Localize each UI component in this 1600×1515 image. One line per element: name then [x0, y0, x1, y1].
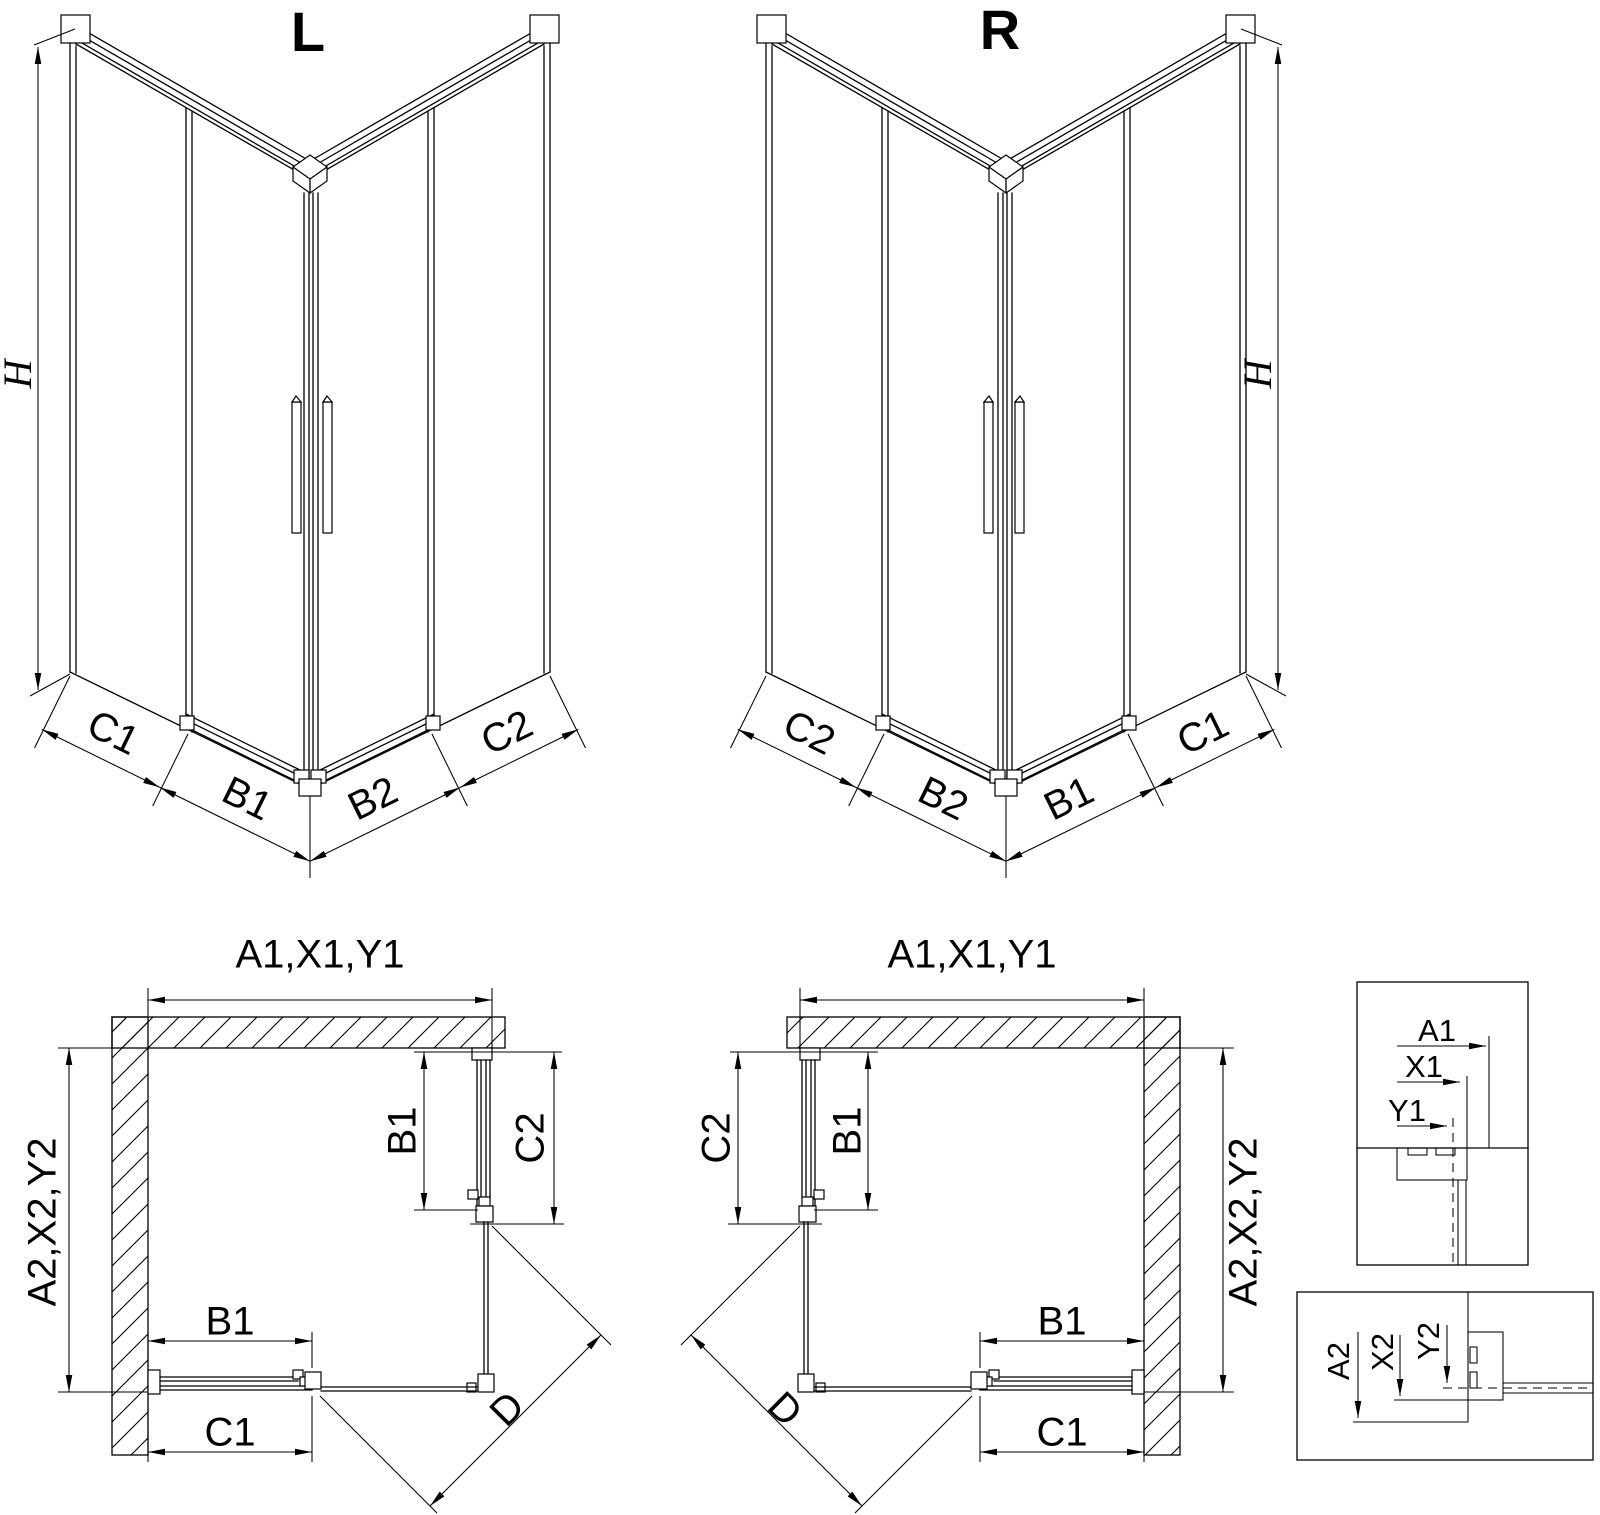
detail-x1-label: X1 [1405, 1049, 1443, 1084]
glass-section [1458, 1180, 1466, 1265]
iso-right-height-label: H [1235, 357, 1280, 389]
detail-y1-label: Y1 [1388, 1093, 1426, 1128]
plan-left-c1-label: C1 [204, 1411, 255, 1455]
plan-left-b1-side-label: B1 [381, 1107, 425, 1156]
detail-x2-label: X2 [1365, 1333, 1400, 1371]
plan-view-left: A1,X1,Y1 A2,X2,Y2 B1 C2 B1 C1 D [21, 933, 611, 1513]
iso-right-dim-b1: B1 [1037, 768, 1100, 829]
plan-left-c2-label: C2 [509, 1112, 553, 1163]
reference-lines [1467, 1036, 1489, 1148]
iso-view-left: L H C1 B1 B2 C2 [0, 0, 586, 878]
plan-left-a1-label: A1,X1,Y1 [235, 933, 404, 977]
iso-left-dim-b1: B1 [215, 768, 278, 829]
iso-left-dim-c1: C1 [80, 702, 145, 764]
iso-right-dim-c1: C1 [1170, 702, 1235, 764]
detail-y2-label: Y2 [1411, 1322, 1446, 1360]
iso-view-right: R H C2 B2 B1 C1 [731, 0, 1287, 878]
wall-top-hatched [112, 1017, 505, 1048]
plan-right-b1-side-label: B1 [826, 1107, 870, 1156]
plan-view-right: A1,X1,Y1 A2,X2,Y2 B1 C2 B1 C1 D [681, 933, 1266, 1513]
plan-right-a1-label: A1,X1,Y1 [887, 933, 1056, 977]
technical-drawing-page: L H C1 B1 B2 C2 R H C2 B2 B1 C1 A1,X1,Y1… [0, 0, 1600, 1515]
iso-right-dim-c2: C2 [776, 702, 841, 764]
shower-enclosure-diagram: L H C1 B1 B2 C2 R H C2 B2 B1 C1 A1,X1,Y1… [0, 0, 1600, 1515]
iso-left-dim-c2: C2 [474, 702, 539, 764]
iso-right-title: R [980, 0, 1020, 61]
detail-box-width-refs: A1 X1 Y1 [1357, 982, 1528, 1265]
iso-right-dim-b2: B2 [911, 768, 974, 829]
wall-side-hatched [112, 1017, 148, 1455]
plan-left-b1-front-label: B1 [206, 1300, 255, 1344]
plan-left-a2-label: A2,X2,Y2 [21, 1137, 65, 1306]
rail-profile-section [1468, 1332, 1503, 1400]
wall-side-hatched [1144, 1017, 1180, 1455]
detail-a2-label: A2 [1321, 1342, 1356, 1380]
plan-right-a2-label: A2,X2,Y2 [1222, 1137, 1266, 1306]
wall-top-hatched [787, 1017, 1180, 1048]
iso-left-title: L [291, 0, 325, 63]
iso-left-height-label: H [0, 357, 40, 389]
iso-left-dim-b2: B2 [341, 768, 404, 829]
detail-a1-label: A1 [1418, 1013, 1456, 1048]
plan-right-c2-label: C2 [695, 1112, 739, 1163]
detail-box-depth-refs: A2 X2 Y2 [1297, 1292, 1593, 1460]
plan-right-c1-label: C1 [1036, 1411, 1087, 1455]
plan-right-b1-front-label: B1 [1038, 1300, 1087, 1344]
